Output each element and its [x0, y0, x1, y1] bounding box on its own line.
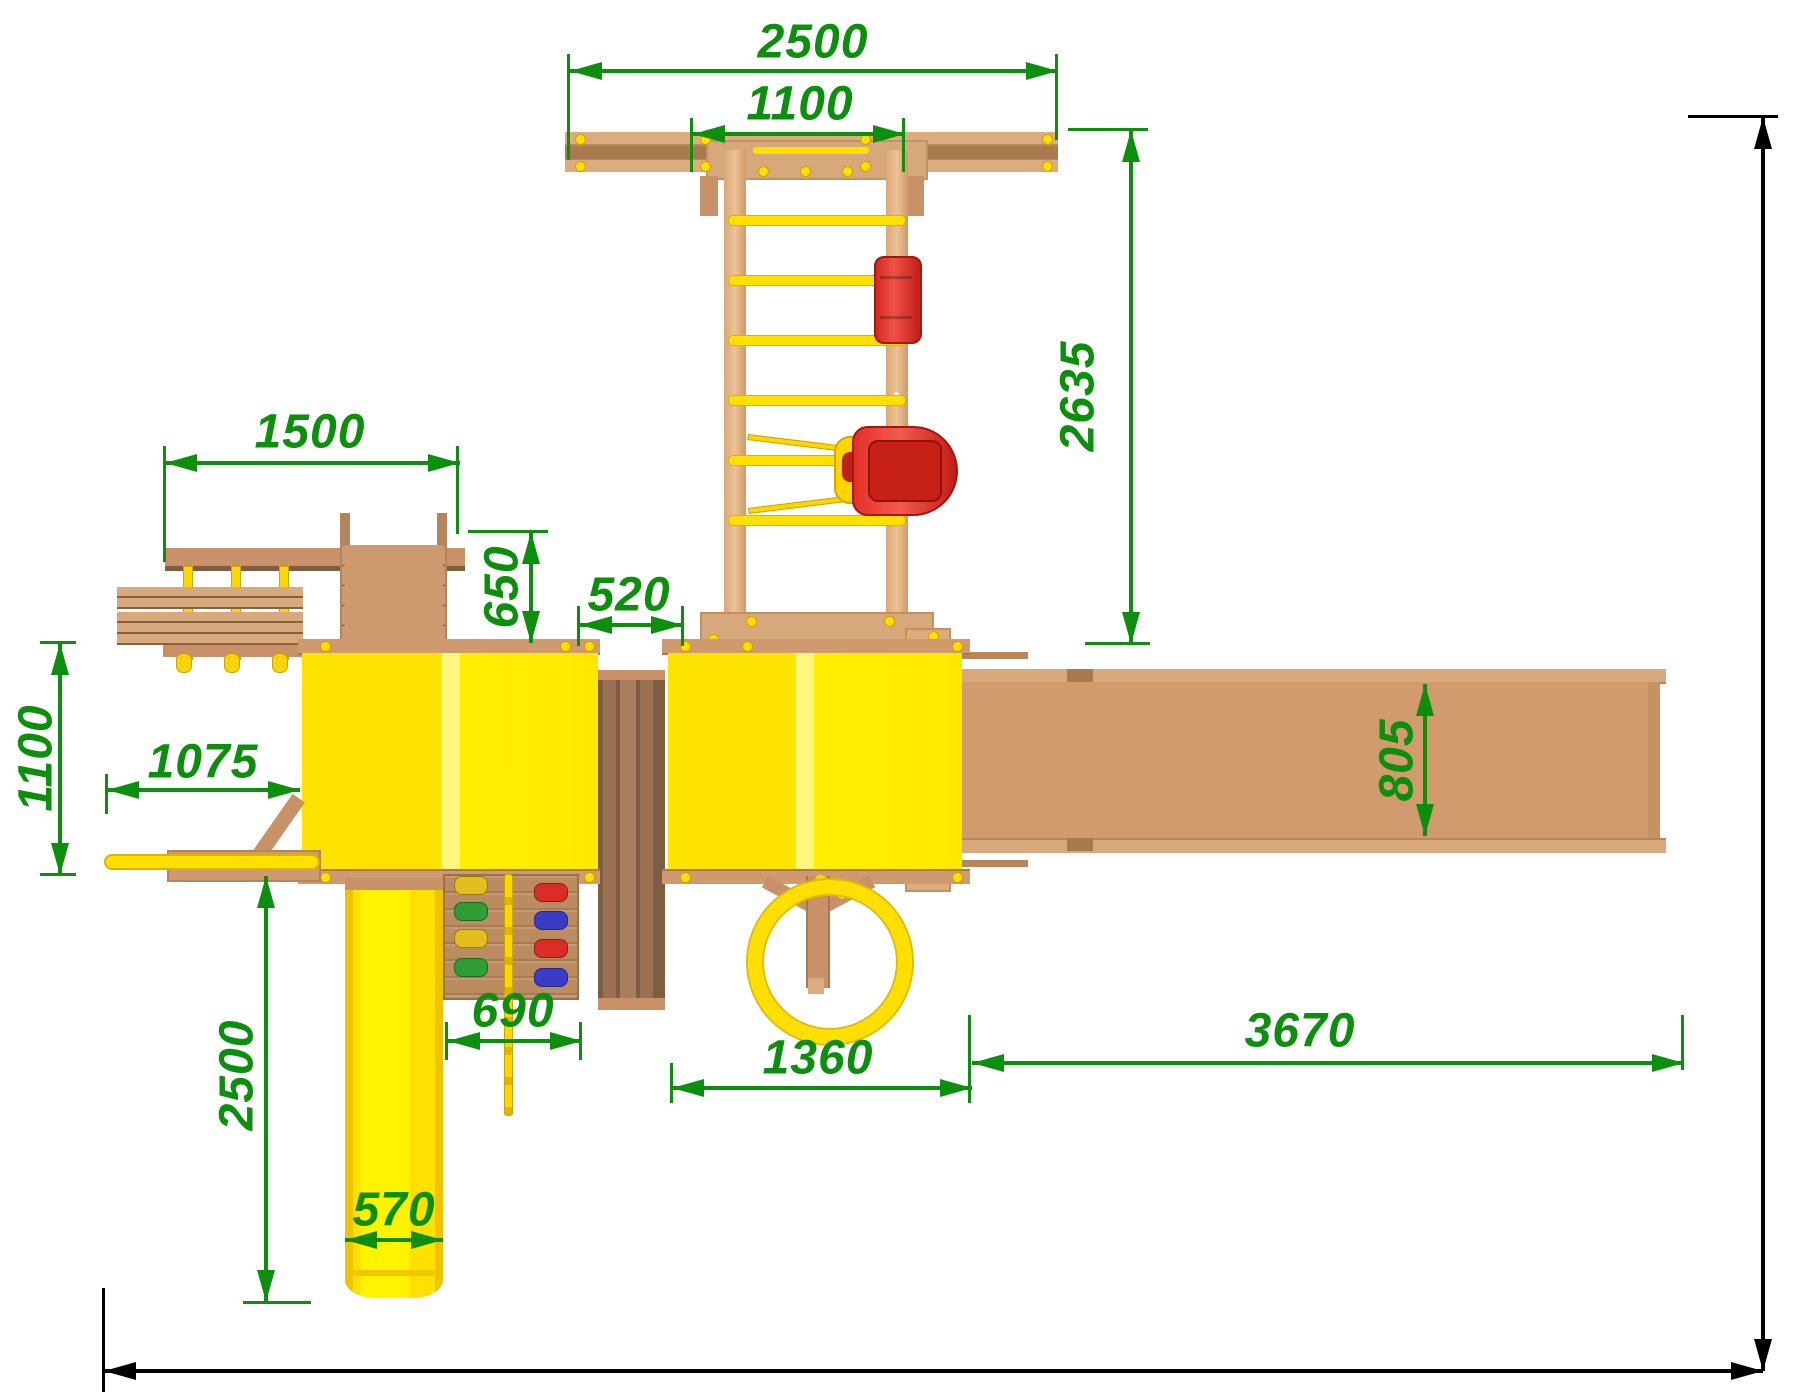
bolt-dot — [860, 161, 871, 172]
dim-label-ramp-offset: 650 — [475, 545, 530, 628]
bridge-plank — [640, 680, 653, 998]
dim-ext-tick — [690, 118, 693, 172]
fireman-pole — [104, 854, 320, 870]
climb-hold-yellow — [454, 929, 488, 948]
bench-slat — [117, 634, 303, 645]
dim-label-bench-span: 1500 — [255, 405, 366, 460]
bolt-dot — [1042, 134, 1053, 145]
bolt-dot — [584, 641, 595, 652]
walkway-rail-notch — [1067, 838, 1093, 851]
swing-seat-ridge — [880, 316, 912, 319]
bolt-dot — [560, 641, 571, 652]
ladder-rung — [728, 515, 906, 526]
arrow-icon — [1652, 1054, 1684, 1072]
bench-slat — [117, 587, 303, 598]
arrow-icon — [104, 1362, 136, 1380]
dim-label-slide-extent: 2500 — [210, 1020, 265, 1131]
bolt-dot — [758, 166, 769, 177]
dim-ext-tick — [163, 446, 166, 562]
climb-hold-red — [534, 939, 568, 958]
climb-hold-red — [534, 883, 568, 902]
arrow-icon — [1122, 130, 1140, 162]
arrow-icon — [257, 1270, 275, 1302]
bolt-dot — [800, 166, 811, 177]
arrow-icon — [570, 62, 602, 80]
arrow-icon — [51, 643, 69, 675]
climb-hold-green — [454, 958, 488, 977]
bolt-dot — [952, 872, 963, 883]
swing-frame-rope-anchor — [753, 147, 869, 154]
dim-label-top-inner: 1100 — [746, 77, 853, 132]
arrow-icon — [1416, 804, 1434, 836]
arrow-icon — [1122, 612, 1140, 644]
bolt-dot — [842, 166, 853, 177]
bolt-dot — [575, 134, 586, 145]
dim-ext-tick — [40, 873, 76, 876]
arrow-icon — [873, 125, 905, 143]
dim-ext-tick — [445, 1022, 448, 1060]
bench-rope-hook — [272, 653, 288, 673]
bolt-dot — [884, 616, 895, 627]
bolt-dot — [742, 641, 753, 652]
bolt-dot — [700, 161, 711, 172]
right-platform-ridge — [796, 653, 814, 871]
climb-hold-blue — [534, 911, 568, 930]
swing-frame-bracket-left — [700, 176, 718, 216]
bolt-dot — [1042, 161, 1053, 172]
slide-top-lip — [345, 878, 443, 890]
bench-rope-hook — [224, 653, 240, 673]
dim-line-total-width — [104, 1369, 1763, 1373]
dim-label-tower-span: 1360 — [763, 1031, 874, 1086]
dim-line-total-depth — [1761, 117, 1765, 1371]
dim-ext-tick — [1068, 128, 1148, 131]
swing-frame-bracket-right — [906, 176, 924, 216]
bolt-dot — [952, 641, 963, 652]
dim-label-pole-reach: 1075 — [148, 735, 259, 790]
bucket-swing-seat-inner — [868, 440, 942, 502]
arrow-icon — [1731, 1362, 1763, 1380]
dim-ext-tick — [681, 606, 684, 646]
climb-hold-green — [454, 902, 488, 921]
tire-ring — [748, 880, 912, 1044]
arrow-icon — [257, 876, 275, 908]
bridge-plank — [620, 680, 636, 998]
arrow-icon — [1026, 62, 1058, 80]
dim-label-top-span: 2500 — [758, 15, 869, 70]
dim-ext-tick — [40, 641, 76, 644]
arrow-icon — [972, 1054, 1004, 1072]
ladder-rung — [728, 395, 906, 406]
bolt-dot — [320, 641, 331, 652]
dim-label-walkway-width: 805 — [1370, 718, 1425, 801]
dim-line-swing-extent — [1129, 130, 1133, 644]
arrow-icon — [107, 781, 139, 799]
dim-label-slide-width: 570 — [352, 1183, 435, 1238]
bench-slat — [117, 598, 303, 609]
dim-line-top-span — [570, 69, 1058, 73]
arrow-icon — [165, 454, 197, 472]
dim-ext-tick — [1688, 115, 1778, 118]
arrow-icon — [1416, 684, 1434, 716]
bolt-dot — [680, 872, 691, 883]
dim-ext-tick — [1681, 1015, 1684, 1070]
dim-label-bridge-gap: 520 — [587, 568, 670, 623]
walkway-end-shadow — [1648, 682, 1660, 838]
arrow-icon — [268, 781, 300, 799]
dim-ext-tick — [567, 54, 570, 160]
climb-hold-yellow — [454, 876, 488, 895]
dim-line-bench-span — [165, 461, 460, 465]
dim-line-walkway-span — [972, 1061, 1684, 1065]
bench-slat — [117, 623, 303, 634]
dim-ext-tick — [968, 1015, 971, 1103]
arrow-icon — [51, 843, 69, 875]
dim-ext-tick — [577, 606, 580, 646]
swing-seat-ridge — [880, 276, 912, 279]
arrow-icon — [1754, 117, 1772, 149]
dim-ext-tick — [670, 1063, 673, 1103]
walkway-rail-notch — [1067, 669, 1093, 682]
dim-label-left-depth: 1100 — [9, 704, 64, 811]
left-platform-ridge — [442, 653, 460, 871]
dim-ext-tick — [1055, 54, 1058, 140]
dim-ext-tick — [468, 530, 548, 533]
dim-ext-tick — [579, 1022, 582, 1060]
swing-seat-flat — [874, 256, 922, 344]
bridge-end-cap — [598, 998, 665, 1010]
drawing-canvas: 2500 1100 2635 1500 650 520 1100 1075 25… — [0, 0, 1800, 1395]
bolt-dot — [746, 616, 757, 627]
dim-ext-tick — [105, 774, 108, 814]
dim-line-tower-span — [672, 1086, 972, 1090]
bolt-dot — [584, 872, 595, 883]
dim-label-wall-width: 690 — [471, 984, 554, 1039]
dim-ext-tick — [102, 1288, 105, 1392]
ladder-rung — [728, 215, 906, 226]
dim-label-walkway-span: 3670 — [1245, 1004, 1356, 1059]
dim-ext-tick — [1085, 642, 1150, 645]
dim-label-swing-extent: 2635 — [1051, 341, 1106, 452]
arrow-icon — [693, 125, 725, 143]
dim-ext-tick — [456, 446, 459, 534]
right-platform-roof — [668, 653, 962, 871]
walkway-surface — [962, 682, 1660, 838]
bench-rope-hook — [176, 653, 192, 673]
arrow-icon — [550, 1032, 582, 1050]
bolt-dot — [575, 161, 586, 172]
dim-ext-tick — [243, 1301, 311, 1304]
dim-ext-tick — [902, 118, 905, 172]
bench-slat — [117, 612, 303, 623]
dim-line-slide-extent — [264, 876, 268, 1302]
arrow-icon — [672, 1079, 704, 1097]
bridge-plank — [603, 680, 616, 998]
bolt-dot — [320, 872, 331, 883]
slide-end-rib — [352, 1270, 436, 1276]
bridge-end-cap — [598, 670, 665, 680]
